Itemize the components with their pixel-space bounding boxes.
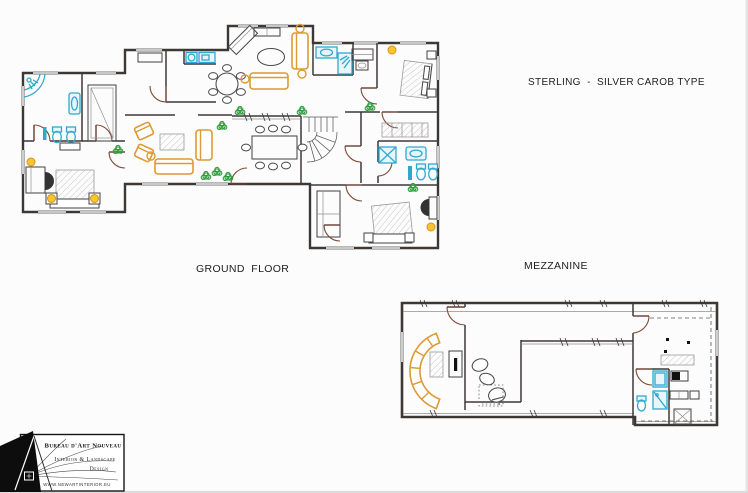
round-breakfast-table [209, 65, 246, 104]
lounge [229, 25, 308, 90]
doors [447, 307, 652, 385]
ceiling-lamp [27, 158, 35, 166]
scanned-floor-plan-sheet: Bureau d'Art Nouveau Interior & Landscap… [0, 0, 748, 493]
ceiling-lamp [388, 46, 396, 54]
shower [653, 371, 667, 387]
piano-bench [229, 26, 258, 55]
desk-chair [45, 172, 54, 190]
desk [661, 355, 694, 365]
vanity-sink [69, 93, 80, 114]
plan-title: STERLING - SILVER CAROB TYPE [528, 77, 705, 88]
floor-plan-drawing: Bureau d'Art Nouveau Interior & Landscap… [0, 0, 748, 493]
ground-floor-plan [20, 23, 440, 250]
dining-table [242, 125, 308, 170]
rug [160, 134, 184, 150]
chair [421, 199, 430, 216]
shower-tray [653, 391, 667, 409]
mezzanine-label: MEZZANINE [524, 260, 588, 272]
ground-floor-label: GROUND FLOOR [196, 263, 289, 275]
tv-lounge [410, 333, 462, 408]
armchair [134, 122, 154, 141]
coffee-table [258, 49, 285, 66]
void-railing [521, 338, 633, 346]
logo: Bureau d'Art Nouveau Interior & Landscap… [0, 431, 124, 492]
sofa [155, 159, 193, 174]
logo-company: Bureau d'Art Nouveau [45, 443, 122, 450]
logo-tagline-2: Design [89, 467, 108, 473]
doors [34, 86, 398, 241]
staircase [303, 117, 338, 162]
tv [454, 358, 457, 371]
bedside-lamp [91, 195, 99, 203]
interior-walls [465, 303, 669, 425]
sofa [292, 33, 308, 69]
bedside-lamp [48, 195, 56, 203]
sofa [250, 73, 288, 89]
pouf [478, 371, 496, 386]
doormat [60, 143, 80, 150]
ceiling-lamp [427, 223, 435, 231]
mezzanine-plan [399, 300, 719, 425]
toilet [637, 396, 646, 411]
studio-room [637, 307, 713, 424]
bedroom-top-right [352, 46, 436, 99]
ottoman [298, 70, 306, 78]
pouf [470, 357, 489, 374]
corner-shower [24, 74, 45, 97]
interior-walls [23, 43, 438, 185]
lounge-bathroom [316, 47, 352, 74]
stair-landing [470, 357, 507, 406]
rug [430, 352, 443, 377]
entry-kitchen [138, 53, 245, 104]
bedroom-bottom-right [317, 191, 437, 243]
logo-tagline-1: Interior & Landscape [54, 457, 116, 463]
corridor-closet [382, 123, 428, 137]
logo-website: WWW.NEWARTINTERIOR.EU [43, 482, 111, 487]
sofa [196, 130, 212, 160]
hall-wardrobe [88, 85, 116, 141]
bathroom-mid-right [379, 147, 438, 180]
bedroom-left [26, 158, 100, 208]
